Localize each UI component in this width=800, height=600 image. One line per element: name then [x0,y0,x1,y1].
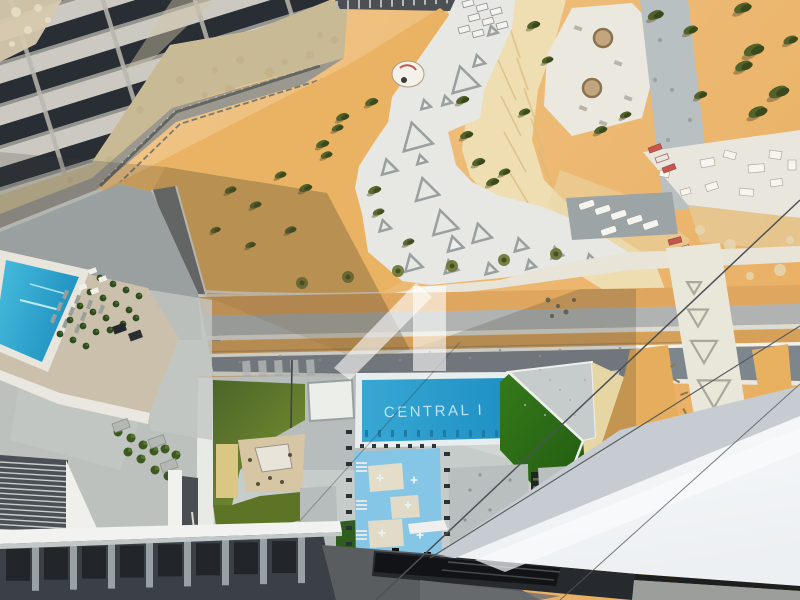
svg-text:CENTRAL I: CENTRAL I [384,402,485,422]
